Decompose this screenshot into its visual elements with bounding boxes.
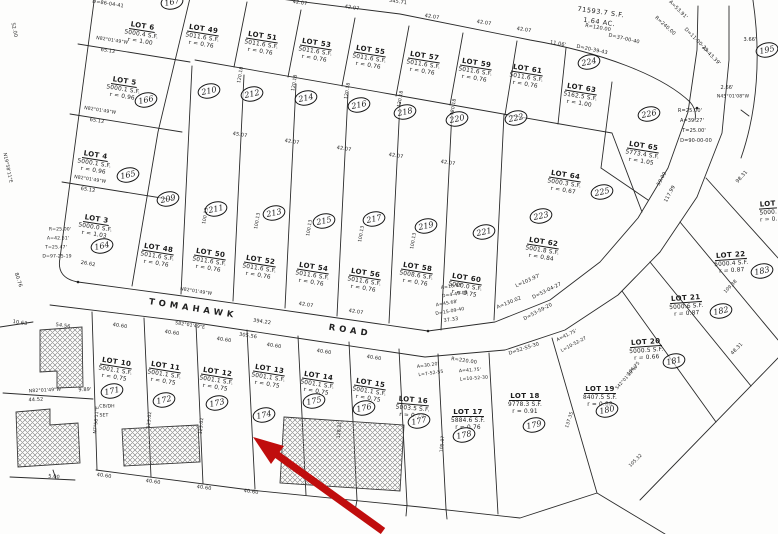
lot-label-lot-12: LOT 125001.1 S.F.r = 0.75: [198, 358, 237, 395]
lot-label-lot-54: LOT 545011.6 S.F.r = 0.76: [294, 253, 333, 290]
plat-map-screenshot: TOMAHAWK ROAD 71593.7 S.F. 1.64 AC. LOT …: [0, 0, 778, 534]
lot-label-lot-57: LOT 575011.6 S.F.r = 0.76: [405, 42, 444, 79]
lot-name: LOT 18: [509, 392, 541, 401]
lot-label-lot-4: LOT 45000.1 S.F.r = 0.96: [76, 141, 115, 178]
lot-name: LOT 19: [584, 385, 616, 394]
dimension-annotation: N45°01'08"W: [717, 95, 749, 100]
lot-label-lot-20: LOT 205000.5 S.F.r = 0.66: [628, 329, 664, 363]
lot-label-lot-53: LOT 535011.6 S.F.r = 0.76: [297, 29, 336, 66]
lot-label-lot-55: LOT 555011.6 S.F.r = 0.76: [351, 36, 390, 73]
lot-label-lot-10: LOT 105001.1 S.F.r = 0.75: [97, 348, 136, 385]
lot-name: LOT 21: [670, 293, 702, 304]
dimension-annotation: 44.52: [28, 397, 43, 404]
lot-label-lot-64: LOT 645000.3 S.F.r = 0.67: [546, 161, 585, 198]
lot-label-lot-56: LOT 565011.6 S.F.r = 0.76: [346, 259, 385, 296]
lot-area: 9778.3 S.F.: [508, 402, 542, 409]
lot-label-lot-58: LOT 585008.6 S.F.r = 0.76: [398, 253, 437, 290]
building-footprint: [40, 327, 83, 388]
ne-road-outer-curve: [741, 0, 757, 158]
dimension-annotation: A=39.27': [680, 118, 704, 124]
lot-label-lot-52: LOT 525011.6 S.F.r = 0.76: [241, 246, 280, 283]
lot-area: 5884.6 S.F.: [451, 418, 485, 425]
dimension-annotation: D=90-00-00: [680, 138, 712, 144]
dimension-annotation: 9.89': [78, 387, 91, 394]
lot-label-lot-49: LOT 495011.6 S.F.r = 0.76: [184, 15, 223, 52]
lot-ratio: r = 0.91: [508, 409, 542, 416]
dimension-annotation: R=25.00': [49, 228, 71, 233]
lot-label-lot-61: LOT 615011.6 S.F.r = 0.76: [508, 55, 547, 92]
building-footprint: [16, 409, 80, 467]
lot-label-lot-65: LOT 655773.4 S.F.r = 1.05: [624, 132, 663, 169]
lot-label-lot-59: LOT 595011.6 S.F.r = 0.76: [457, 49, 496, 86]
lot-label-lot-62: LOT 625001.8 S.F.r = 0.84: [524, 228, 563, 265]
dimension-annotation: T=25.47': [45, 246, 67, 251]
lot-name: LOT: [758, 199, 777, 209]
right-block-rear-line: [640, 358, 778, 500]
lot-ratio: r = 0.: [760, 216, 778, 224]
lot-label-lot-13: LOT 135001.1 S.F.r = 0.75: [250, 355, 289, 392]
dimension-annotation: 5.00: [48, 474, 60, 481]
lot-name: LOT 22: [715, 250, 747, 261]
lot-area: 8407.5 S.F.: [583, 395, 617, 402]
dimension-annotation: SET: [100, 414, 109, 419]
lot-label-lot-63: LOT 635162.5 S.F.r = 1.00: [562, 74, 601, 111]
dimension-annotation: A=42.51': [47, 237, 69, 242]
dimension-annotation: 2.66': [720, 85, 733, 91]
lot-label-lot-11: LOT 115001.1 S.F.r = 0.75: [146, 352, 185, 389]
dimension-annotation: 3.66': [743, 37, 756, 43]
lot-label-lot-50: LOT 505011.6 S.F.r = 0.76: [191, 239, 230, 276]
dimension-annotation: T=25.00': [682, 128, 706, 134]
lot-label-lot: LOT5000.r = 0.: [758, 191, 778, 224]
lot-label-lot-22: LOT 225000.4 S.F.r = 0.87: [713, 242, 749, 276]
lot-name: LOT 17: [452, 408, 484, 417]
building-footprint: [122, 425, 200, 466]
dimension-annotation: D=97-25-19: [42, 255, 71, 260]
lot-label-lot-3: LOT 35000.0 S.F.r = 1.03: [77, 205, 116, 242]
lot-label-lot-6: LOT 65000.4 S.F.r = 1.00: [123, 12, 162, 49]
lot-label-lot-48: LOT 485011.6 S.F.r = 0.76: [139, 234, 178, 271]
lot-label-lot-18: LOT 189778.3 S.F.r = 0.91: [508, 384, 542, 416]
lot-label-lot-51: LOT 515011.6 S.F.r = 0.76: [243, 22, 282, 59]
lot-label-lot-21: LOT 215000.6 S.F.r = 0.87: [668, 285, 704, 319]
dimension-annotation: CB/DH: [99, 405, 114, 410]
lot-name: LOT 20: [630, 337, 662, 348]
dimension-annotation: R=25.00': [678, 108, 702, 114]
